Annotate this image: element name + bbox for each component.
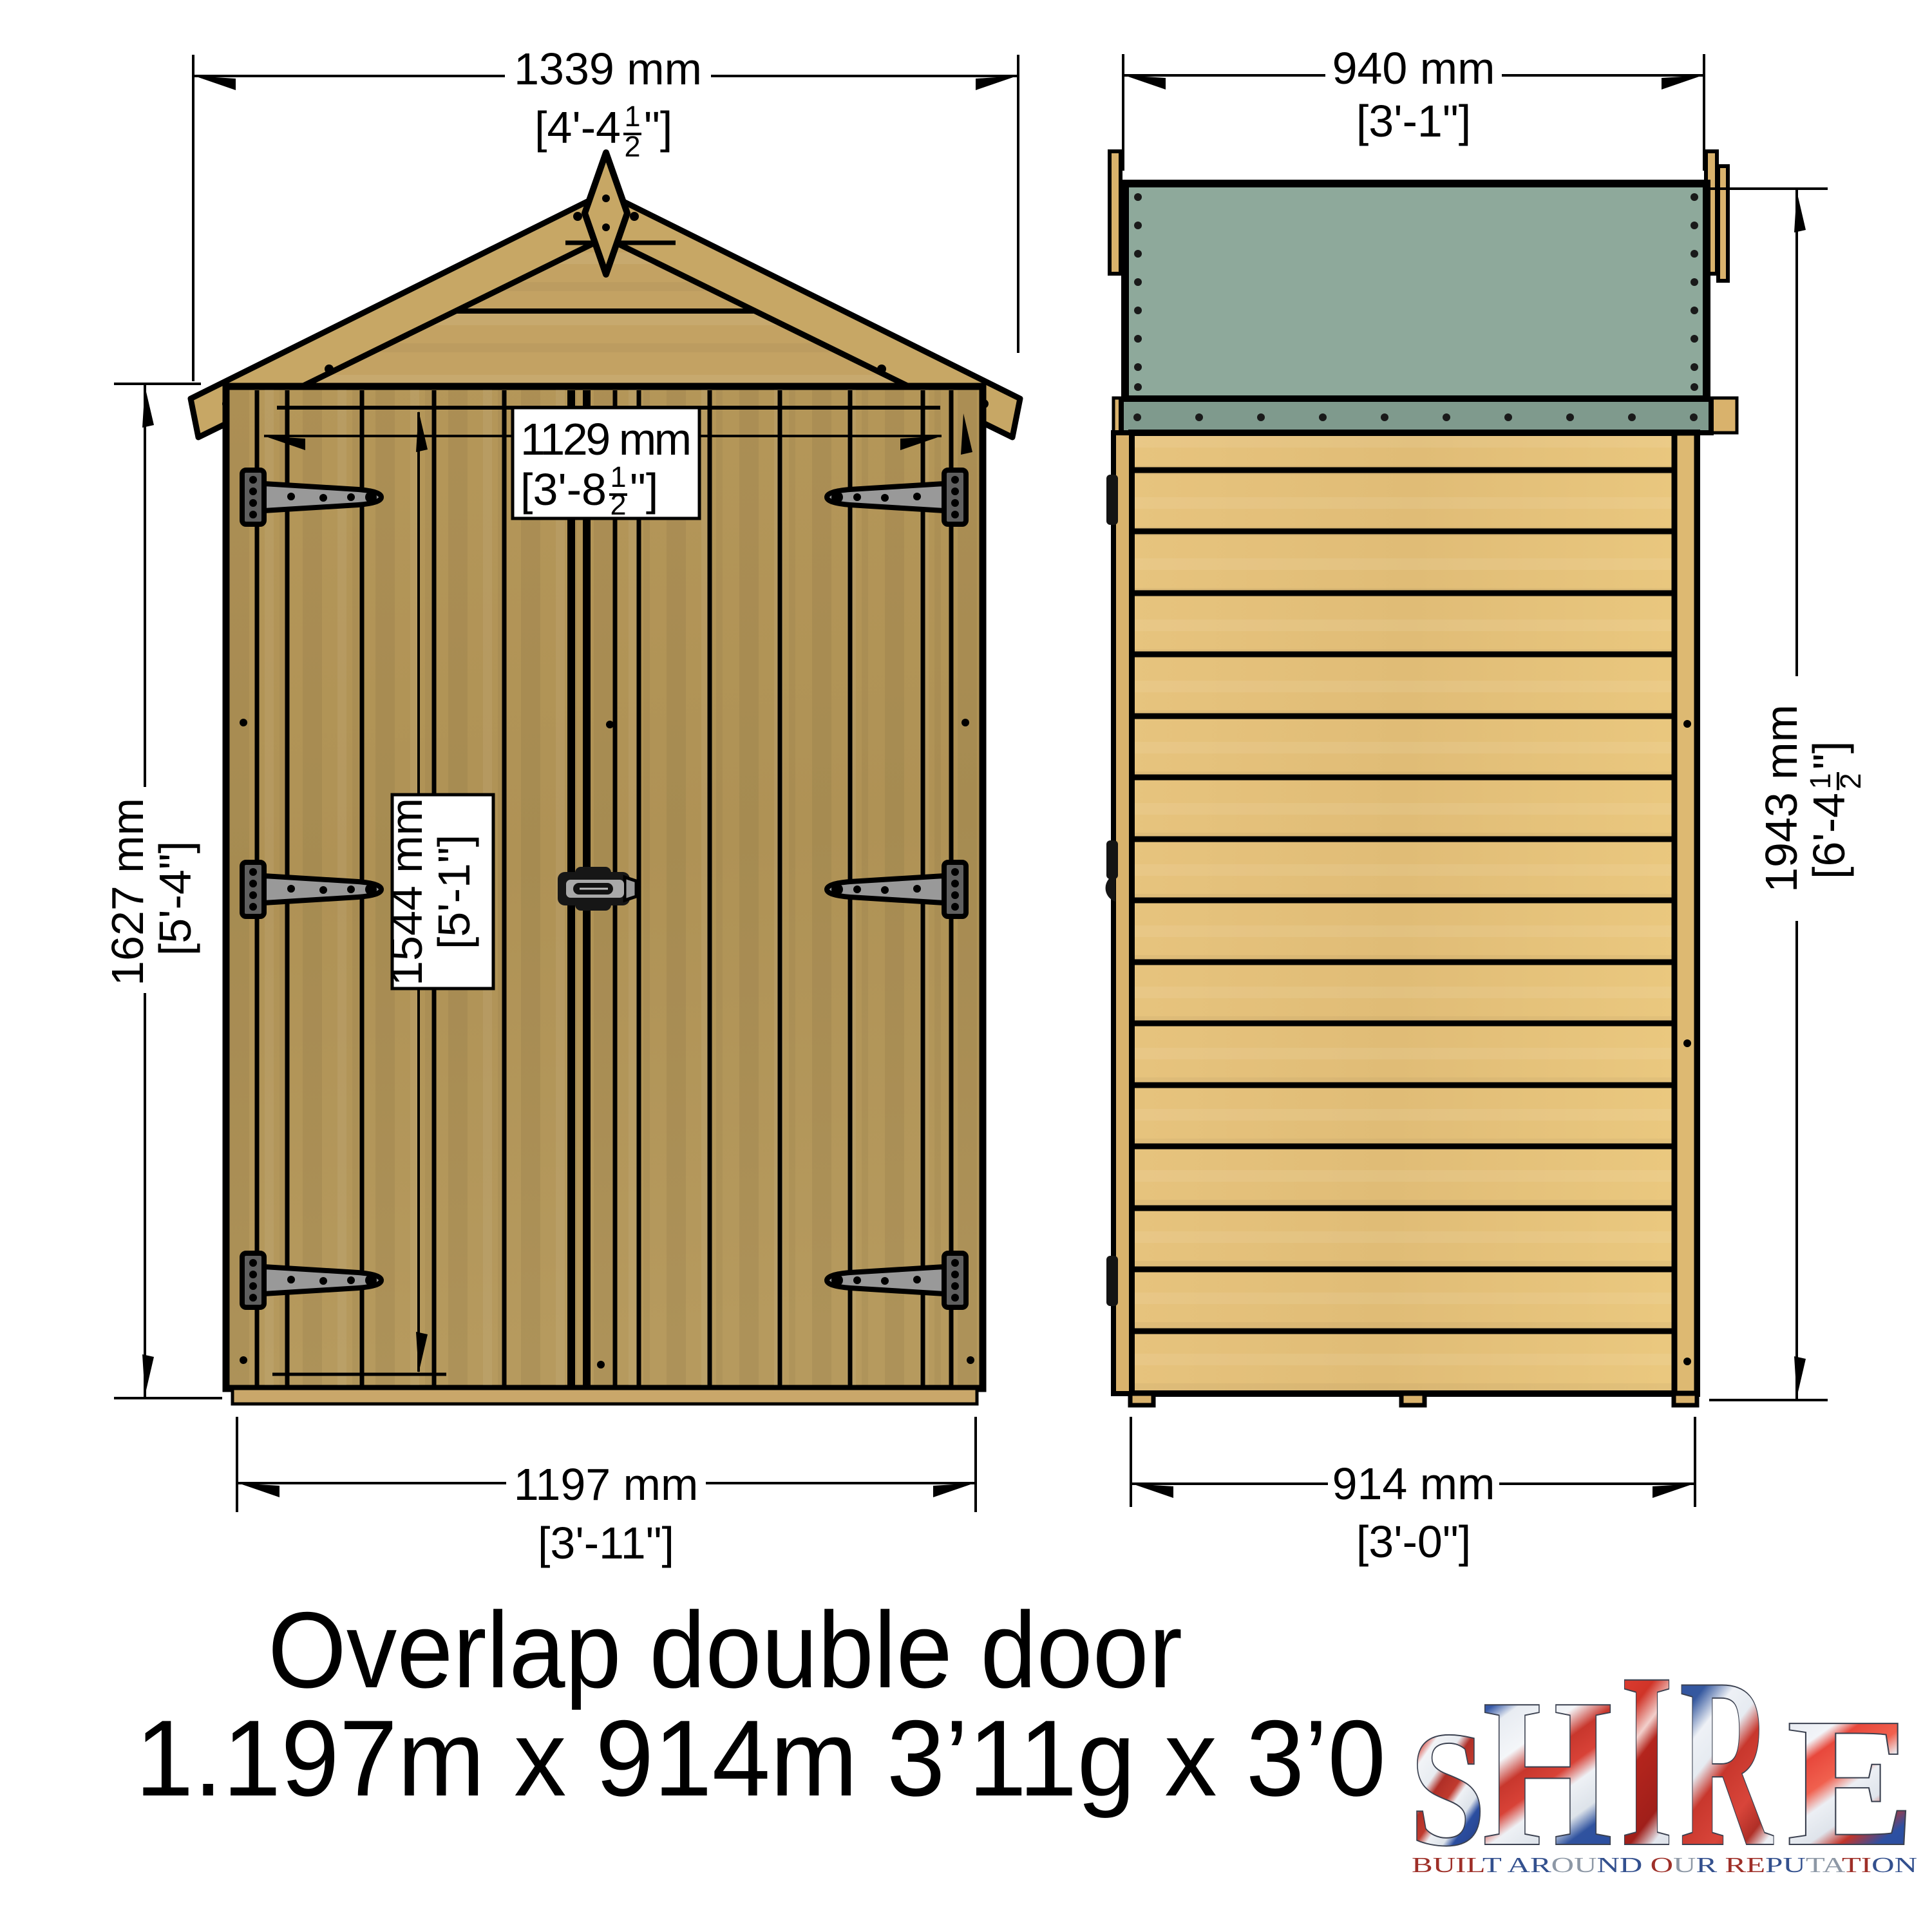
svg-text:[5'-4"]: [5'-4"] — [150, 841, 200, 956]
svg-text:[3'-0"]: [3'-0"] — [1356, 1517, 1471, 1567]
svg-text:1: 1 — [624, 100, 640, 133]
svg-text:[6'-4: [6'-4 — [1804, 793, 1854, 879]
svg-text:[3'-8: [3'-8 — [520, 464, 607, 515]
svg-text:1943 mm: 1943 mm — [1756, 705, 1806, 893]
svg-text:2: 2 — [610, 488, 626, 521]
svg-text:"]: "] — [1804, 741, 1854, 770]
svg-text:BUILT AROUND OUR REPUTATION: BUILT AROUND OUR REPUTATION — [1412, 1853, 1917, 1877]
svg-text:1: 1 — [1804, 773, 1837, 789]
svg-text:[4'-4: [4'-4 — [535, 102, 621, 153]
svg-text:1627 mm: 1627 mm — [102, 798, 153, 986]
svg-text:"]: "] — [630, 464, 658, 515]
svg-text:[3'-1"]: [3'-1"] — [1356, 96, 1471, 146]
svg-text:1197 mm: 1197 mm — [514, 1459, 699, 1510]
svg-text:1339 mm: 1339 mm — [514, 44, 702, 94]
svg-text:1544 mm: 1544 mm — [381, 798, 431, 986]
svg-text:1.197m x 914m 3’11g x 3’0: 1.197m x 914m 3’11g x 3’0 — [135, 1698, 1386, 1819]
svg-text:Overlap double door: Overlap double door — [268, 1589, 1182, 1710]
svg-text:940 mm: 940 mm — [1332, 43, 1495, 93]
svg-text:[3'-11"]: [3'-11"] — [538, 1518, 674, 1568]
svg-text:1129 mm: 1129 mm — [520, 414, 692, 464]
svg-text:[5'-1"]: [5'-1"] — [429, 835, 479, 949]
svg-text:914 mm: 914 mm — [1332, 1459, 1495, 1509]
svg-text:"]: "] — [644, 102, 672, 153]
